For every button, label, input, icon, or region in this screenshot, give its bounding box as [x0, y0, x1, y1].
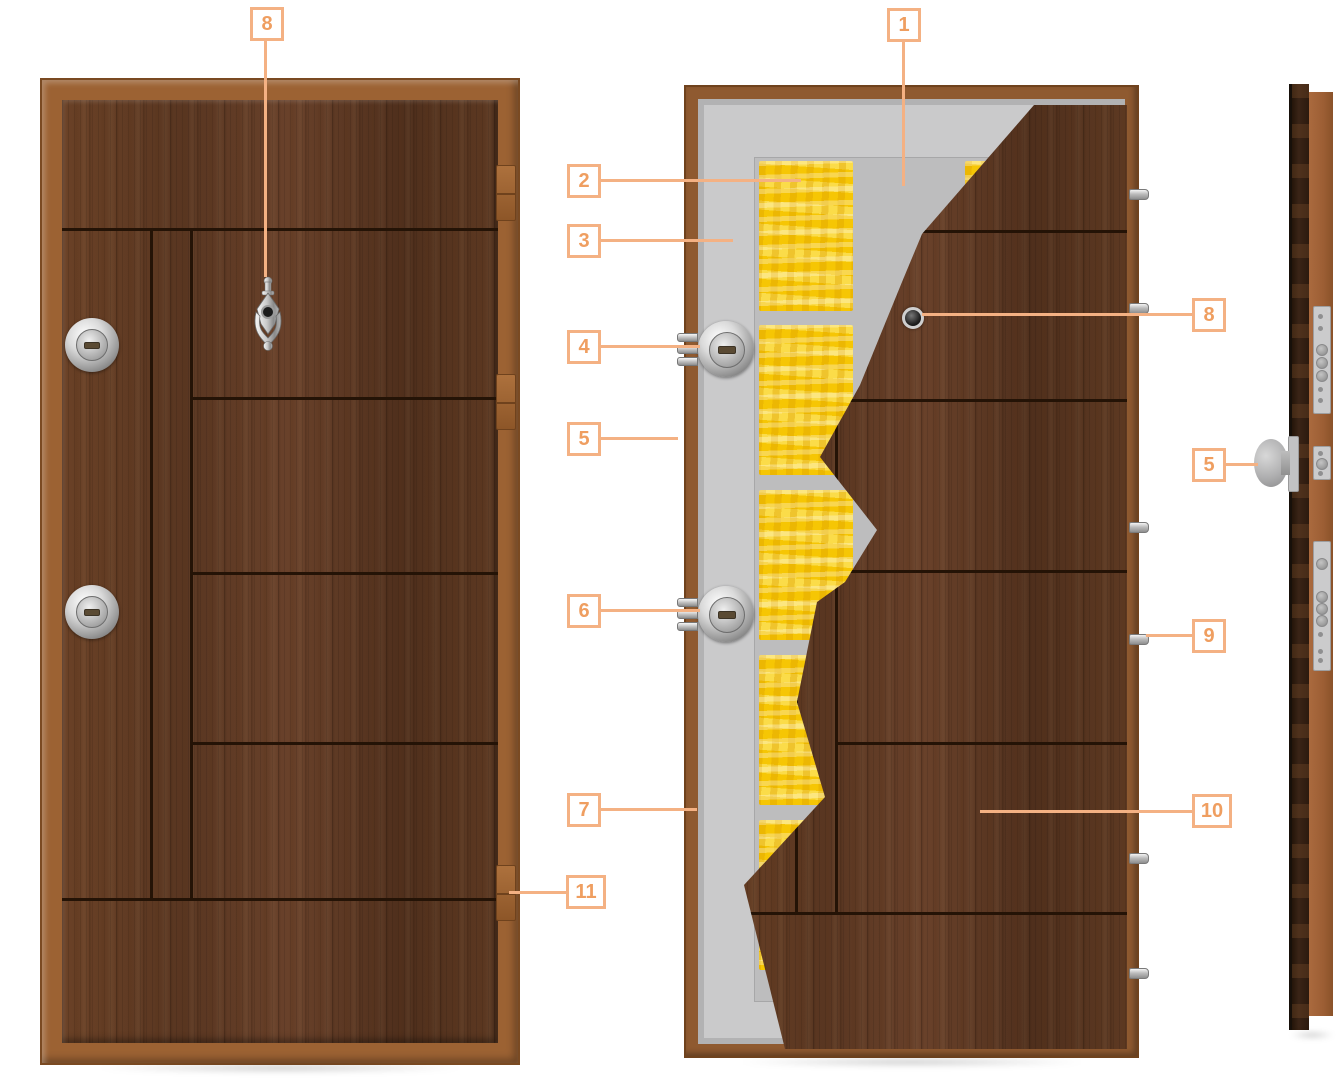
callout-upper-lock: 4	[567, 330, 601, 364]
bolt-dot	[1316, 458, 1328, 470]
security-pin	[1129, 853, 1149, 864]
callout-insulation: 2	[567, 164, 601, 198]
callout-line-insulation	[601, 179, 801, 182]
bolt-dot	[1318, 632, 1323, 637]
bolt-dot	[1318, 658, 1323, 663]
bolt-dot	[1318, 649, 1323, 654]
lower-lock-escutcheon	[698, 586, 754, 642]
door-shadow	[692, 1056, 1132, 1068]
front-door-leaf	[62, 100, 498, 1043]
callout-hinge: 11	[566, 875, 606, 909]
callout-line-steel-sheet	[902, 42, 905, 186]
bolt-dot	[1316, 591, 1328, 603]
callout-line-hinge	[509, 891, 566, 894]
lower-lock-escutcheon	[65, 585, 119, 639]
lock-bolt	[677, 598, 698, 607]
groove-line	[62, 228, 498, 231]
door-knocker-icon	[248, 276, 288, 352]
peephole	[902, 307, 924, 329]
bolt-dot	[1316, 558, 1328, 570]
callout-frame-edge: 7	[567, 793, 601, 827]
callout-line-wood-panel	[980, 810, 1192, 813]
lock-bolt	[677, 333, 698, 342]
lock-bolt	[677, 622, 698, 631]
lock-bolt	[677, 357, 698, 366]
door-shadow	[1284, 1030, 1340, 1040]
insulation-block	[759, 161, 853, 311]
callout-line-steel-body	[601, 239, 733, 242]
lower-lock-cylinder	[76, 596, 108, 628]
callout-line-upper-lock	[601, 345, 700, 348]
bolt-dot	[1316, 370, 1328, 382]
bolt-dot	[1316, 357, 1328, 369]
cutaway-door-frame	[684, 85, 1139, 1058]
handle-neck	[1281, 451, 1290, 475]
side-edge-view	[1253, 84, 1340, 1034]
callout-line-knocker	[264, 41, 267, 277]
keyhole	[718, 346, 736, 354]
security-pin	[1129, 522, 1149, 533]
callout-line-leaf-edge	[601, 437, 678, 440]
front-door-frame	[40, 78, 520, 1065]
groove-line	[190, 228, 193, 901]
callout-wood-panel: 10	[1192, 794, 1232, 828]
door-shadow	[48, 1062, 512, 1074]
callout-line-security-pin	[1146, 634, 1192, 637]
hinge	[496, 374, 516, 430]
groove-line	[190, 742, 498, 745]
callout-security-pin: 9	[1192, 619, 1226, 653]
groove-line	[835, 742, 1127, 745]
bolt-dot	[1318, 471, 1323, 476]
callout-lower-lock: 6	[567, 594, 601, 628]
upper-lock-cylinder	[709, 332, 745, 368]
security-pin	[1129, 189, 1149, 200]
upper-lock-escutcheon	[65, 318, 119, 372]
door-leaf-side	[1292, 84, 1309, 1030]
callout-leaf-edge: 5	[567, 422, 601, 456]
callout-handle: 5	[1192, 448, 1226, 482]
bolt-dot	[1318, 314, 1323, 319]
bolt-dot	[1318, 451, 1323, 456]
hinge	[496, 165, 516, 221]
groove-line	[190, 397, 498, 400]
keyhole	[718, 611, 736, 619]
keyhole	[84, 609, 100, 616]
callout-line-handle	[1226, 463, 1258, 466]
door-construction-diagram: 8 1 2 3 4 5 6 7 11 8 5 9 10	[0, 0, 1340, 1080]
groove-line	[62, 898, 498, 901]
callout-line-peephole	[922, 313, 1192, 316]
callout-peephole: 8	[1192, 298, 1226, 332]
bolt-dot	[1318, 398, 1323, 403]
callout-knocker: 8	[250, 7, 284, 41]
security-pin	[1129, 968, 1149, 979]
bolt-dot	[1318, 387, 1323, 392]
groove-line	[705, 912, 1127, 915]
groove-line	[835, 570, 1127, 573]
groove-line	[835, 399, 1127, 402]
callout-steel-sheet: 1	[887, 8, 921, 42]
bolt-dot	[1316, 615, 1328, 627]
groove-line	[150, 228, 153, 901]
callout-steel-body: 3	[567, 224, 601, 258]
lower-lock-cylinder	[709, 597, 745, 633]
keyhole	[84, 342, 100, 349]
bolt-dot	[1316, 603, 1328, 615]
bolt-dot	[1316, 344, 1328, 356]
upper-lock-cylinder	[76, 329, 108, 361]
bolt-dot	[1318, 326, 1323, 331]
callout-line-lower-lock	[601, 609, 700, 612]
callout-line-frame-edge	[601, 808, 697, 811]
upper-lock-escutcheon	[698, 321, 754, 377]
groove-line	[190, 572, 498, 575]
